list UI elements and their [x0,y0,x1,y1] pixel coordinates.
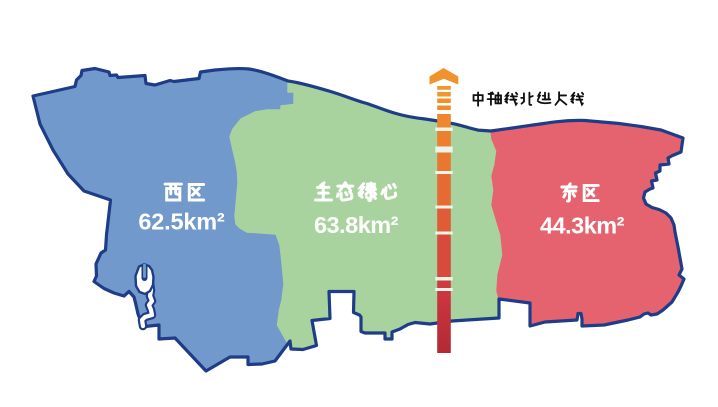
svg-text:44.3km²: 44.3km² [540,213,625,239]
svg-text:63.8km²: 63.8km² [314,212,399,238]
svg-text:62.5km²: 62.5km² [138,209,225,235]
